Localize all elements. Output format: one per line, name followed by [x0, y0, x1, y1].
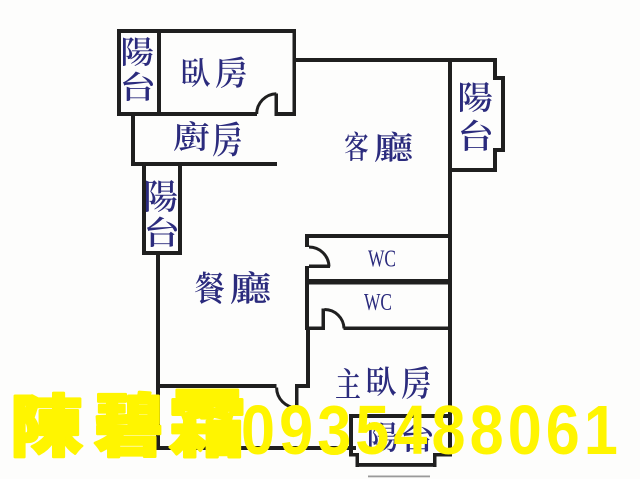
svg-text:1: 1: [584, 391, 618, 469]
svg-text:0: 0: [241, 391, 275, 469]
svg-text:4: 4: [393, 391, 427, 469]
svg-text:5: 5: [355, 391, 389, 469]
svg-text:WC: WC: [364, 290, 392, 316]
svg-text:6: 6: [546, 391, 580, 469]
svg-text:0: 0: [508, 391, 542, 469]
svg-text:8: 8: [432, 391, 466, 469]
svg-text:WC: WC: [368, 247, 396, 273]
svg-text:9: 9: [279, 391, 313, 469]
svg-text:3: 3: [317, 391, 351, 469]
svg-text:8: 8: [470, 391, 504, 469]
